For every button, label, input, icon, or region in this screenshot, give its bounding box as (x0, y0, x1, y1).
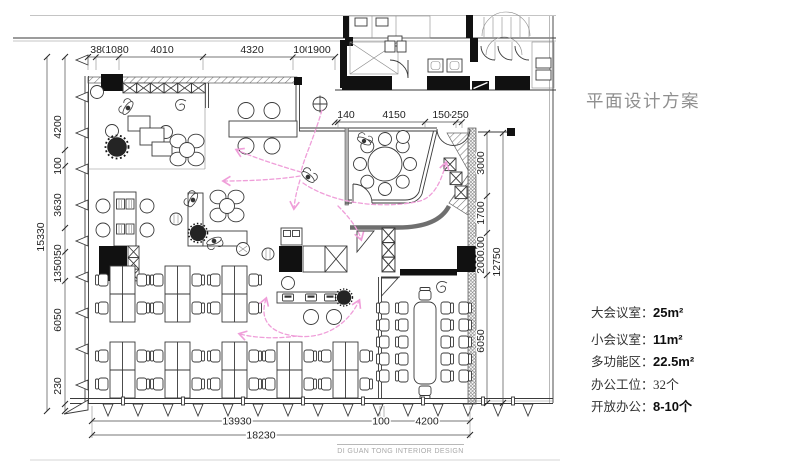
plant-sketch (176, 100, 186, 111)
svg-text:6050: 6050 (475, 329, 487, 353)
svg-text:18230: 18230 (246, 430, 275, 442)
legend-label: 办公工位： (591, 374, 653, 393)
round-table-4-seats (170, 134, 204, 166)
reception-area (88, 84, 205, 169)
printer-icon (306, 294, 317, 301)
svg-text:12750: 12750 (491, 247, 503, 276)
plant-sketch (437, 282, 447, 293)
person-figure (300, 166, 319, 184)
corridor-partitions (357, 228, 395, 272)
svg-text:13930: 13930 (222, 416, 251, 428)
svg-text:1700: 1700 (475, 201, 487, 225)
pantry-block (262, 228, 347, 272)
conference-table (414, 302, 436, 384)
elevator-room (532, 42, 554, 88)
plant (189, 224, 208, 243)
legend-row: 多功能区： 22.5m² (591, 351, 791, 370)
small-meeting-room (345, 128, 437, 205)
column (101, 74, 123, 91)
printer-icon (325, 294, 336, 301)
page-title: 平面设计方案 (586, 88, 700, 113)
door-leaf (382, 278, 399, 296)
svg-text:1900: 1900 (307, 44, 331, 56)
svg-text:230: 230 (52, 377, 64, 395)
printer-icon (283, 294, 294, 301)
legend-label: 小会议室： (591, 329, 653, 348)
legend-row: 小会议室： 11m² (591, 329, 791, 348)
washroom-sinks (385, 38, 489, 90)
round-table-4-seats (210, 190, 244, 222)
column (279, 246, 302, 272)
light-symbol (313, 96, 328, 113)
l-desk-zone (170, 189, 250, 255)
svg-text:15330: 15330 (35, 222, 47, 251)
legend-label: 开放办公： (591, 396, 653, 415)
svg-text:4200: 4200 (52, 115, 64, 139)
svg-text:250: 250 (451, 109, 469, 121)
workstation-pod (96, 192, 154, 246)
studio-watermark: DI GUAN TONG INTERIOR DESIGN (337, 444, 464, 455)
svg-text:1350: 1350 (52, 259, 64, 283)
svg-text:4200: 4200 (415, 416, 439, 428)
floor-plan-sheet: 380 1080 4010 4320 100 1900 140 4150 150… (0, 0, 800, 476)
svg-text:100: 100 (372, 416, 390, 428)
svg-text:4320: 4320 (240, 44, 264, 56)
person-figure (117, 97, 135, 116)
svg-text:100: 100 (52, 157, 64, 175)
svg-text:3000: 3000 (475, 151, 487, 175)
plant (106, 136, 129, 159)
open-office (96, 266, 373, 398)
svg-text:2000: 2000 (475, 250, 487, 274)
svg-text:1080: 1080 (105, 44, 129, 56)
legend-row: 大会议室： 25m² (591, 302, 791, 321)
legend-value: 25m² (653, 305, 683, 320)
print-station (277, 277, 353, 325)
legend-value: 11m² (653, 332, 683, 347)
cabinet-row (123, 83, 205, 93)
svg-text:3630: 3630 (52, 193, 64, 217)
legend-value: 22.5m² (653, 354, 694, 369)
svg-text:6050: 6050 (52, 308, 64, 332)
svg-text:4010: 4010 (150, 44, 174, 56)
facade-mullions-left (64, 55, 88, 414)
legend-label: 多功能区： (591, 351, 653, 370)
waiting-desk (229, 103, 297, 155)
svg-text:140: 140 (337, 109, 355, 121)
legend-value: 32个 (653, 374, 679, 393)
plant (336, 289, 353, 306)
legend-label: 大会议室： (591, 302, 653, 321)
legend-row: 开放办公： 8-10个 (591, 396, 791, 415)
meeting-table (368, 147, 402, 181)
svg-text:4150: 4150 (382, 109, 406, 121)
legend-row: 办公工位： 32个 (591, 374, 791, 393)
legend-value: 8-10个 (653, 396, 692, 415)
